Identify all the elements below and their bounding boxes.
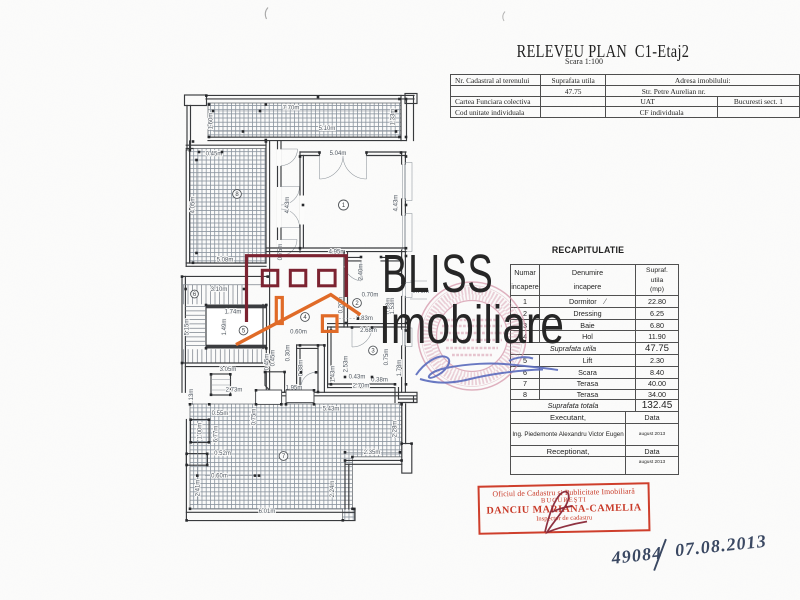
svg-text:2.35m: 2.35m xyxy=(364,450,381,456)
svg-text:1.43m: 1.43m xyxy=(331,366,337,383)
svg-text:0.55m: 0.55m xyxy=(212,411,229,417)
svg-text:2.73m: 2.73m xyxy=(226,387,243,393)
svg-text:0.38m: 0.38m xyxy=(371,378,388,384)
svg-text:0.75m: 0.75m xyxy=(252,409,258,426)
svg-text:5.04m: 5.04m xyxy=(330,151,347,157)
svg-text:4.43m: 4.43m xyxy=(394,195,400,212)
svg-text:1.00m: 1.00m xyxy=(198,423,204,440)
svg-text:0.52m: 0.52m xyxy=(214,451,231,457)
svg-text:1.49m: 1.49m xyxy=(222,319,228,336)
svg-text:0.60m: 0.60m xyxy=(290,329,307,335)
svg-text:2.28m: 2.28m xyxy=(393,421,399,438)
svg-text:2.70m: 2.70m xyxy=(353,383,370,389)
svg-text:5.10m: 5.10m xyxy=(319,126,336,132)
svg-text:6.77m: 6.77m xyxy=(214,426,220,443)
svg-text:5.43m: 5.43m xyxy=(323,406,340,412)
svg-text:2.24m: 2.24m xyxy=(330,481,336,498)
svg-text:5.15m: 5.15m xyxy=(184,319,190,336)
svg-text:2.41m: 2.41m xyxy=(196,480,202,497)
svg-text:3.05m: 3.05m xyxy=(220,367,237,373)
svg-text:0.45m: 0.45m xyxy=(206,152,223,158)
svg-text:5.08m: 5.08m xyxy=(217,258,234,264)
svg-text:4.05m: 4.05m xyxy=(190,197,196,214)
svg-text:6.01m: 6.01m xyxy=(259,509,276,515)
svg-text:0.43m: 0.43m xyxy=(349,375,366,381)
svg-text:3.10m: 3.10m xyxy=(211,287,228,293)
svg-text:2.68m: 2.68m xyxy=(360,328,377,334)
svg-text:1.13m: 1.13m xyxy=(189,389,195,406)
svg-text:2.53m: 2.53m xyxy=(344,356,350,373)
svg-text:1.74m: 1.74m xyxy=(225,310,242,316)
svg-text:0.70m: 0.70m xyxy=(362,292,379,298)
svg-text:4.43m: 4.43m xyxy=(285,197,291,214)
svg-text:0.60m: 0.60m xyxy=(211,473,228,479)
svg-text:2.40m: 2.40m xyxy=(359,264,365,281)
svg-text:1.60m: 1.60m xyxy=(209,113,215,130)
svg-text:0.45m: 0.45m xyxy=(271,350,277,367)
svg-text:7.70m: 7.70m xyxy=(283,105,300,111)
svg-text:0.38m: 0.38m xyxy=(299,360,305,377)
svg-text:0.30m: 0.30m xyxy=(286,345,292,362)
svg-text:0.45m: 0.45m xyxy=(265,354,271,371)
svg-text:1.78m: 1.78m xyxy=(397,360,403,377)
